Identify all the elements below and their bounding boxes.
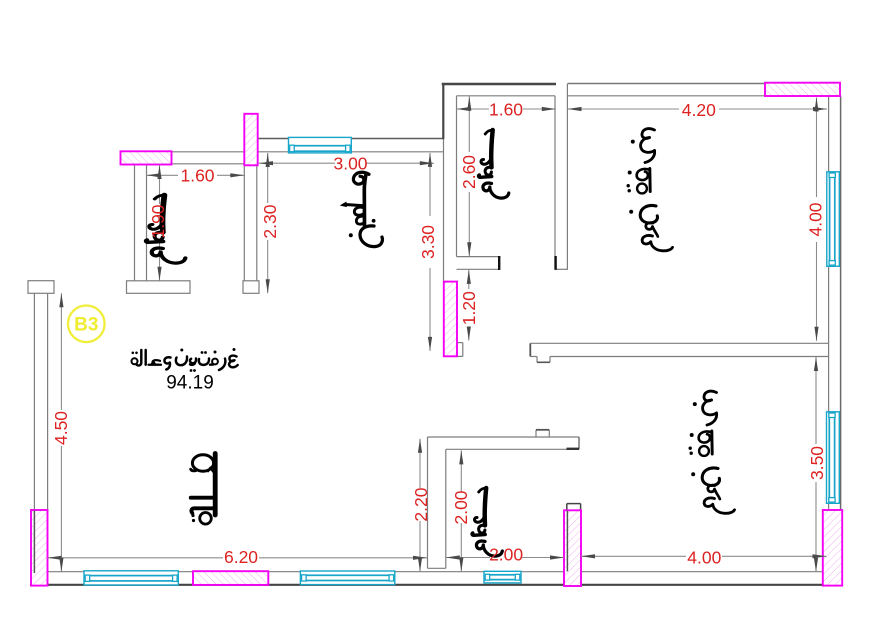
svg-text:2.00: 2.00 [451, 490, 471, 524]
svg-text:2.00: 2.00 [489, 544, 523, 564]
svg-text:94.19: 94.19 [166, 373, 214, 394]
svg-text:4.50: 4.50 [51, 411, 71, 445]
svg-text:4.00: 4.00 [805, 202, 825, 236]
svg-text:6.20: 6.20 [224, 547, 258, 567]
svg-text:1.90: 1.90 [148, 204, 168, 238]
svg-text:4.00: 4.00 [687, 547, 721, 567]
svg-text:2.60: 2.60 [459, 155, 479, 189]
svg-text:1.60: 1.60 [180, 166, 214, 186]
svg-text:2.30: 2.30 [260, 204, 280, 238]
svg-text:1.20: 1.20 [459, 291, 479, 325]
svg-text:4.20: 4.20 [682, 100, 716, 120]
svg-text:3.50: 3.50 [807, 446, 827, 480]
svg-text:3.30: 3.30 [418, 225, 438, 259]
svg-text:B3: B3 [74, 315, 98, 336]
svg-text:1.60: 1.60 [489, 100, 523, 120]
svg-text:3.00: 3.00 [333, 154, 367, 174]
svg-text:2.20: 2.20 [411, 487, 431, 521]
